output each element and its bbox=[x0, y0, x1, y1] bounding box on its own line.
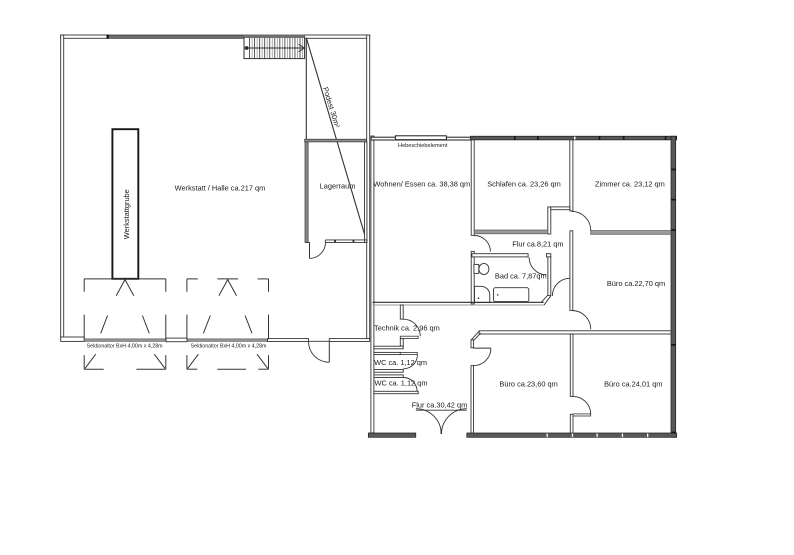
svg-text:Bad ca. 7,87qm: Bad ca. 7,87qm bbox=[495, 272, 547, 281]
svg-text:Zimmer ca. 23,12 qm: Zimmer ca. 23,12 qm bbox=[595, 179, 665, 188]
svg-text:Büro ca.24,01 qm: Büro ca.24,01 qm bbox=[604, 379, 662, 388]
svg-text:Technik ca. 2,96 qm: Technik ca. 2,96 qm bbox=[374, 324, 440, 333]
svg-text:Schlafen ca. 23,26 qm: Schlafen ca. 23,26 qm bbox=[487, 179, 561, 188]
svg-text:Flur ca.8,21 qm: Flur ca.8,21 qm bbox=[512, 240, 563, 249]
svg-text:Büro ca.23,60 qm: Büro ca.23,60 qm bbox=[499, 379, 557, 388]
svg-text:Büro ca.22,70 qm: Büro ca.22,70 qm bbox=[607, 279, 665, 288]
svg-text:Hebeschiebelement: Hebeschiebelement bbox=[398, 143, 448, 149]
svg-text:Werkstatt / Halle ca.217 qm: Werkstatt / Halle ca.217 qm bbox=[175, 184, 266, 193]
svg-text:Flur ca.30,42 qm: Flur ca.30,42 qm bbox=[412, 400, 467, 409]
svg-text:Lagerraum: Lagerraum bbox=[320, 181, 356, 190]
svg-text:Sektionaltor BxH 4,00m x 4,28m: Sektionaltor BxH 4,00m x 4,28m bbox=[87, 344, 164, 350]
svg-text:Wohnen/ Essen ca. 38,38 qm: Wohnen/ Essen ca. 38,38 qm bbox=[373, 179, 470, 188]
svg-text:Werkstattgrube: Werkstattgrube bbox=[122, 189, 131, 239]
svg-text:WC ca. 1,12 qm: WC ca. 1,12 qm bbox=[375, 379, 428, 388]
svg-text:Sektionaltor BxH 4,00m x 4,28m: Sektionaltor BxH 4,00m x 4,28m bbox=[191, 344, 268, 350]
svg-text:WC ca. 1,12 qm: WC ca. 1,12 qm bbox=[374, 358, 427, 367]
